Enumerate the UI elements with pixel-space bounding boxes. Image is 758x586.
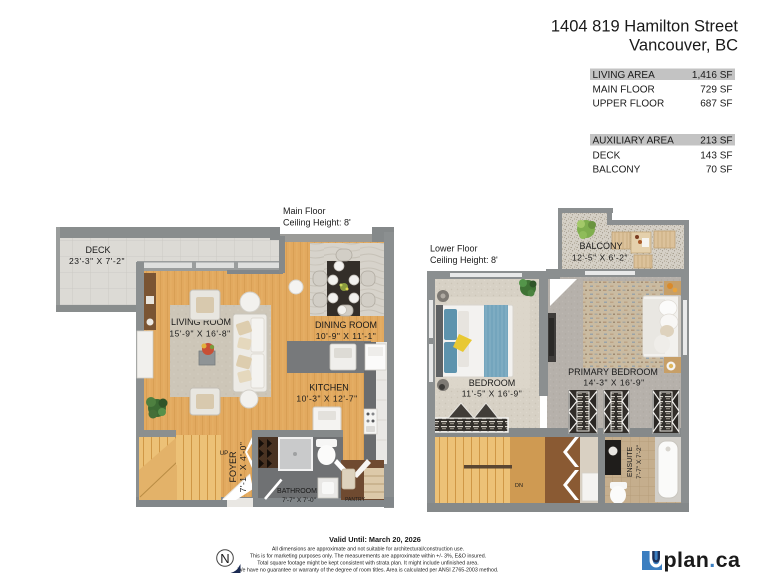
svg-text:PANTRY: PANTRY: [345, 497, 365, 503]
svg-text:7'-7" X 7'-2": 7'-7" X 7'-2": [636, 444, 643, 479]
svg-text:DECK: DECK: [593, 151, 621, 162]
svg-text:143 SF: 143 SF: [700, 151, 732, 162]
svg-text:10'-9" X 11'-1": 10'-9" X 11'-1": [316, 331, 377, 341]
svg-text:1,416 SF: 1,416 SF: [692, 70, 733, 81]
svg-text:1404 819 Hamilton Street: 1404 819 Hamilton Street: [551, 18, 739, 36]
svg-text:N: N: [220, 551, 229, 566]
svg-text:plan.ca: plan.ca: [664, 548, 742, 572]
svg-text:UP: UP: [220, 451, 228, 457]
svg-text:ENSUITE: ENSUITE: [627, 447, 634, 478]
svg-text:12'-5" X 6'-2": 12'-5" X 6'-2": [572, 253, 628, 263]
svg-text:BATHROOM: BATHROOM: [277, 488, 317, 495]
svg-text:BALCONY: BALCONY: [579, 241, 622, 251]
svg-text:23'-3" X 7'-2": 23'-3" X 7'-2": [69, 256, 125, 266]
svg-text:Ceiling Height: 8': Ceiling Height: 8': [430, 255, 498, 265]
svg-text:BEDROOM: BEDROOM: [469, 378, 516, 388]
svg-text:DECK: DECK: [85, 245, 110, 255]
svg-text:All dimensions are approximate: All dimensions are approximate and not s…: [272, 547, 464, 553]
svg-text:DN: DN: [515, 483, 523, 489]
svg-text:FOYER: FOYER: [228, 451, 238, 483]
svg-text:Ceiling Height: 8': Ceiling Height: 8': [283, 218, 351, 228]
svg-text:729 SF: 729 SF: [700, 85, 732, 96]
svg-text:This is for marketing purposes: This is for marketing purposes only. The…: [250, 554, 486, 560]
svg-text:11'-5" X 16'-9": 11'-5" X 16'-9": [462, 389, 523, 399]
svg-text:10'-3" X 12'-7": 10'-3" X 12'-7": [296, 394, 357, 404]
svg-text:LIVING AREA: LIVING AREA: [593, 70, 656, 81]
svg-text:Valid Until: March 20, 2026: Valid Until: March 20, 2026: [329, 535, 421, 544]
svg-text:PRIMARY BEDROOM: PRIMARY BEDROOM: [568, 367, 658, 377]
svg-text:BALCONY: BALCONY: [593, 165, 641, 176]
svg-text:Total square footage might be: Total square footage might be kept consi…: [257, 561, 478, 567]
svg-text:MAIN FLOOR: MAIN FLOOR: [593, 85, 655, 96]
svg-text:AUXILIARY AREA: AUXILIARY AREA: [593, 136, 675, 147]
svg-text:KITCHEN: KITCHEN: [309, 383, 349, 393]
svg-text:15'-9" X 16'-8": 15'-9" X 16'-8": [169, 329, 230, 339]
svg-text:DINING ROOM: DINING ROOM: [315, 320, 377, 330]
svg-text:14'-3" X 16'-9": 14'-3" X 16'-9": [583, 378, 644, 388]
svg-text:213 SF: 213 SF: [700, 136, 732, 147]
svg-text:7'-7" X 7'-0": 7'-7" X 7'-0": [282, 497, 317, 504]
svg-text:UPPER FLOOR: UPPER FLOOR: [593, 99, 665, 110]
svg-text:687 SF: 687 SF: [700, 99, 732, 110]
svg-text:Lower Floor: Lower Floor: [430, 244, 478, 254]
svg-text:Vancouver, BC: Vancouver, BC: [629, 37, 738, 55]
svg-text:Main Floor: Main Floor: [283, 206, 326, 216]
svg-text:70 SF: 70 SF: [706, 165, 733, 176]
svg-text:We have no guarantee or warran: We have no guarantee or warranty of the …: [238, 568, 499, 574]
